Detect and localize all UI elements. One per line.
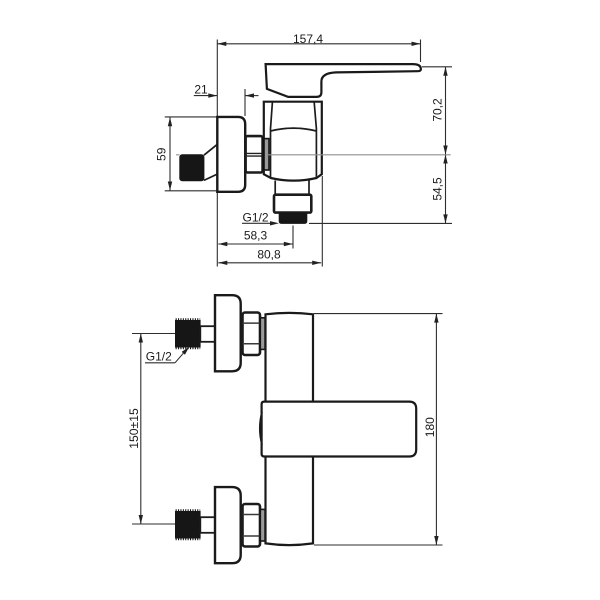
svg-text:54,5: 54,5: [431, 177, 445, 201]
svg-text:157,4: 157,4: [293, 32, 323, 46]
svg-text:58,3: 58,3: [244, 228, 268, 242]
svg-text:150±15: 150±15: [127, 408, 141, 449]
svg-text:80,8: 80,8: [257, 247, 281, 261]
svg-text:G1/2: G1/2: [146, 350, 172, 364]
svg-text:21: 21: [194, 83, 208, 97]
svg-text:70,2: 70,2: [431, 98, 445, 122]
svg-text:G1/2: G1/2: [243, 210, 269, 224]
svg-text:59: 59: [154, 147, 168, 161]
svg-text:180: 180: [423, 417, 437, 437]
